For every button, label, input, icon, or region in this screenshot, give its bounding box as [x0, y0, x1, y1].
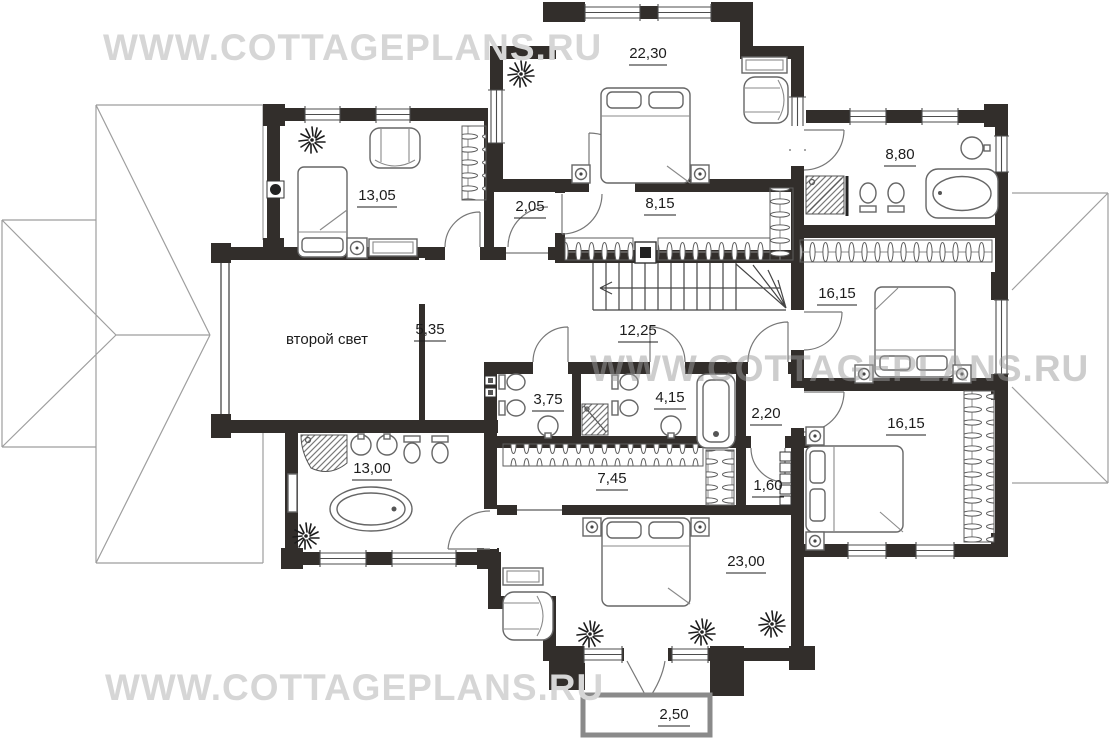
nightstand [691, 518, 709, 536]
toilet [860, 206, 876, 212]
shower-cabin [301, 435, 347, 472]
room-area-label-bedroom-south: 23,00 [727, 553, 765, 570]
room-area-label-vestibule: 2,20 [751, 405, 780, 422]
room-area-label-stair-hall: 12,25 [619, 322, 657, 339]
bidet [432, 436, 448, 442]
door-bathroom-south [448, 511, 490, 549]
pillow [607, 522, 641, 538]
room-area-label-wardrobe-hall: 2,05 [515, 198, 544, 215]
pillow [302, 238, 343, 252]
nightstand [691, 165, 709, 183]
stair-direction-arrow [600, 282, 780, 294]
armchair [503, 592, 553, 640]
room-area-label-bathroom-south: 13,00 [353, 460, 391, 477]
watermarks: WWW.COTTAGEPLANS.RU WWW.COTTAGEPLANS.RU … [103, 27, 1089, 708]
washbasin [961, 137, 983, 159]
pillow [649, 522, 683, 538]
room-area-label-bedroom-southeast: 16,15 [887, 415, 925, 432]
room-bedroom-top-furniture [508, 57, 788, 183]
room-bathroom-south-fixtures [288, 434, 448, 549]
nightstand [806, 427, 824, 445]
nightstand [806, 532, 824, 550]
pillow [607, 92, 641, 108]
room-area-label-master-bathroom: 8,80 [885, 146, 914, 163]
door-bedroom-east [804, 312, 842, 350]
floor-plan: 22,30 13,05 2,05 8,15 8,80 16,15 5,35 12… [0, 0, 1112, 740]
nightstand [572, 165, 590, 183]
room-area-label-closet: 1,60 [753, 477, 782, 494]
room-area-label-balcony: 2,50 [659, 706, 688, 723]
pillow [810, 451, 825, 483]
armchair [744, 77, 788, 123]
room-bedroom-southeast-furniture [806, 427, 903, 550]
plant [299, 127, 325, 153]
room-area-label-gallery-hall: 5,35 [415, 321, 444, 338]
room-area-label-bedroom-east: 16,15 [818, 285, 856, 302]
room-area-label-child-room: 13,05 [358, 187, 396, 204]
toilet [499, 375, 505, 389]
bench [288, 474, 297, 512]
room-name-label-second-light: второй свет [286, 331, 368, 348]
staircase [593, 263, 786, 310]
room-area-label-wc-right: 4,15 [655, 389, 684, 406]
wall-bath-top [791, 110, 1008, 123]
door-bedroom-southeast [804, 392, 844, 432]
door-child-room [445, 212, 480, 247]
second-light-railing [221, 260, 229, 420]
room-area-label-bedroom-top: 22,30 [629, 45, 667, 62]
door-wardrobe-hall [562, 194, 602, 234]
watermark-top: WWW.COTTAGEPLANS.RU [103, 27, 602, 68]
plant [759, 611, 785, 637]
toilet [404, 436, 420, 442]
watermark-bottom: WWW.COTTAGEPLANS.RU [105, 667, 604, 708]
door-wc-left [533, 327, 568, 362]
room-area-label-upper-corridor: 8,15 [645, 195, 674, 212]
tv-cabinet [742, 57, 787, 73]
room-area-label-lower-corridor: 7,45 [597, 470, 626, 487]
bidet [612, 401, 618, 415]
plant [577, 621, 603, 647]
floor-plan-drawing: 22,30 13,05 2,05 8,15 8,80 16,15 5,35 12… [0, 0, 1112, 740]
bidet [888, 206, 904, 212]
door-bathroom-master [804, 130, 844, 170]
pillow [649, 92, 683, 108]
pillow [810, 489, 825, 521]
roof-outline-right [1012, 193, 1108, 483]
roof-outline-left [2, 105, 263, 563]
wall-se-bottom [795, 544, 1008, 557]
bidet [499, 401, 505, 415]
plant [689, 619, 715, 645]
room-area-label-wc-left: 3,75 [533, 391, 562, 408]
watermark-middle: WWW.COTTAGEPLANS.RU [590, 348, 1089, 389]
room-bedroom-south-furniture [503, 518, 785, 647]
nightstand [583, 518, 601, 536]
